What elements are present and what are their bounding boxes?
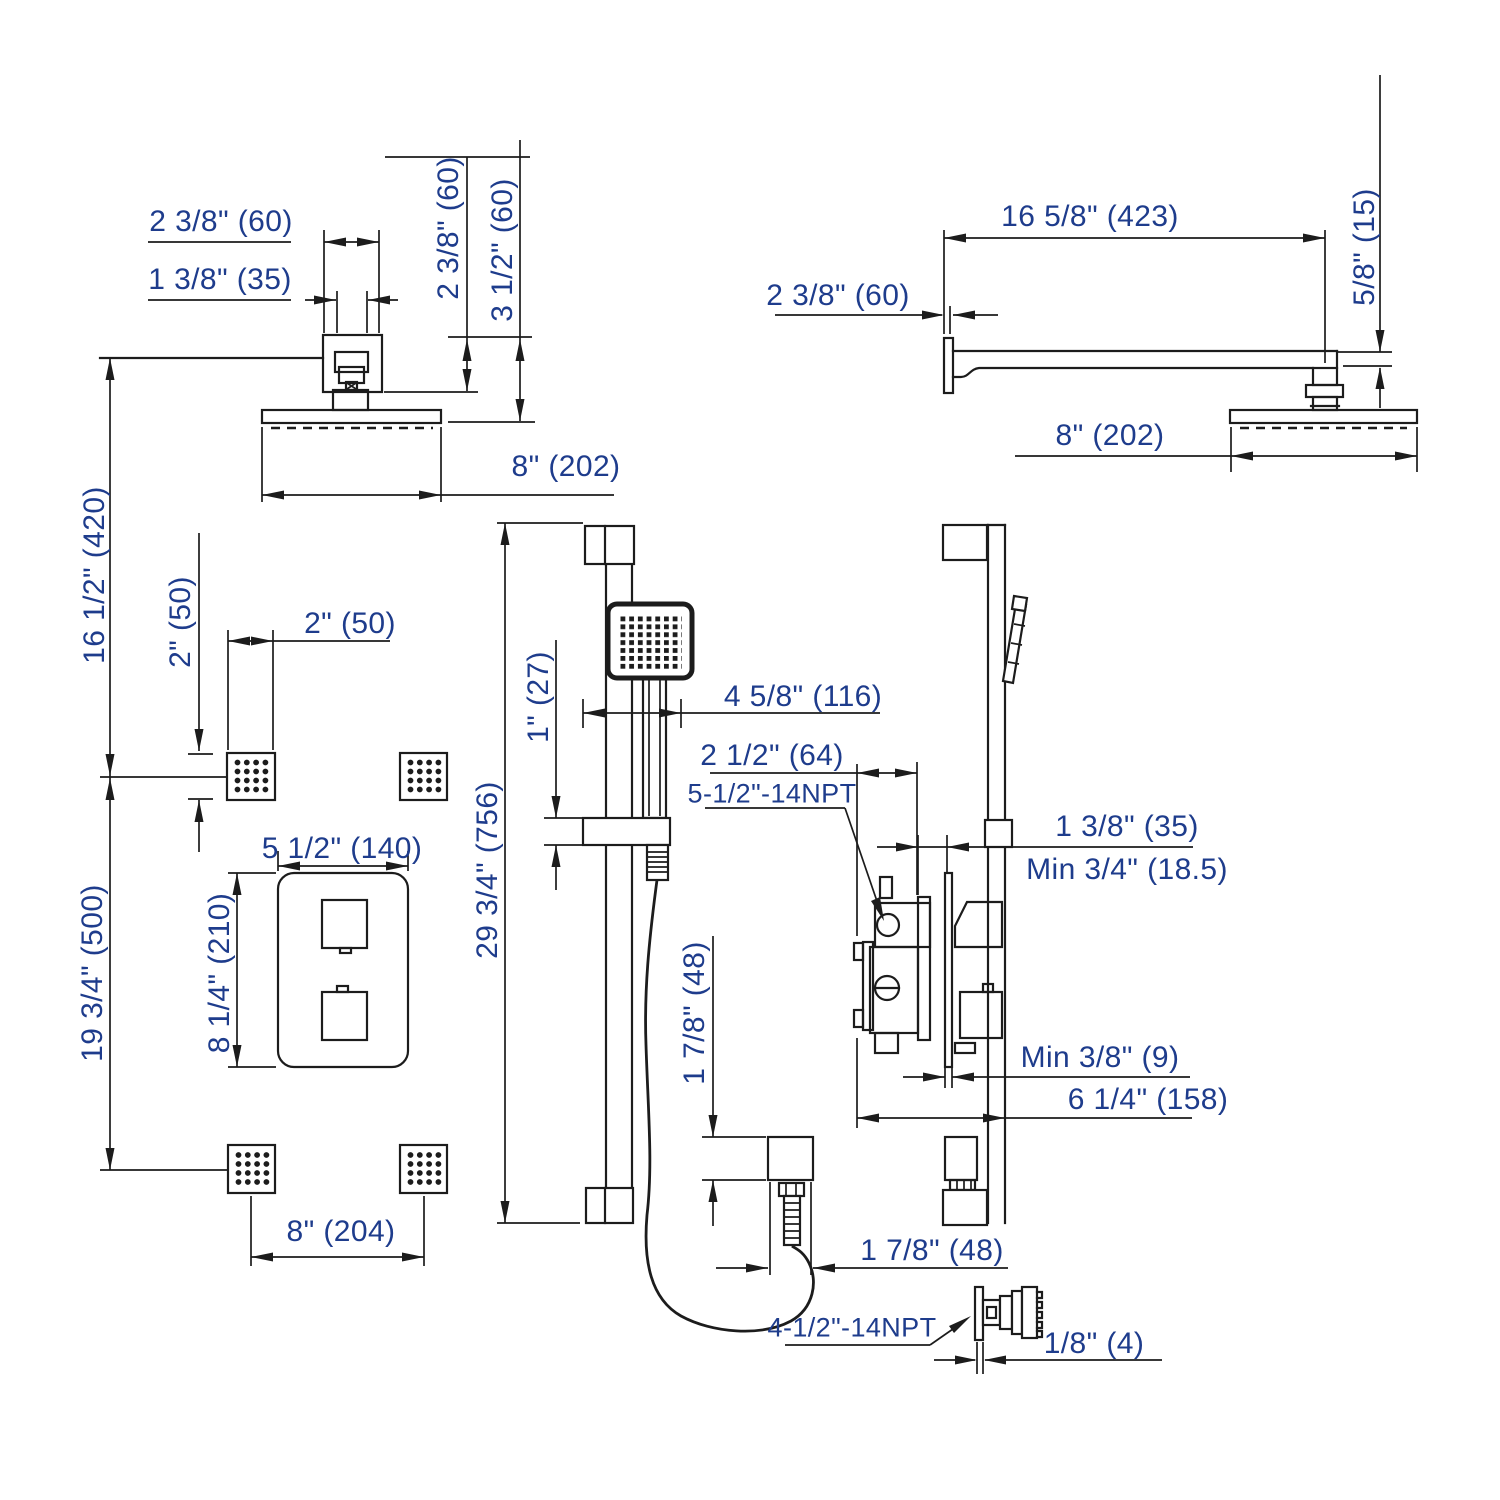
- dim-arm-thickness: 5/8" (15): [1348, 188, 1382, 306]
- dim-bar-diameter: 1" (27): [522, 651, 556, 743]
- dim-upper-to-lower-jets: 19 3/4" (500): [76, 884, 110, 1062]
- dim-slide-bar-length: 29 3/4" (756): [471, 781, 505, 959]
- view-showerhead-side: [775, 75, 1417, 472]
- dim-outlet-height: 1 7/8" (48): [678, 941, 712, 1084]
- dim-head-width-front: 8" (202): [512, 450, 621, 484]
- dim-jet-thread: 4-1/2"-14NPT: [768, 1313, 937, 1344]
- dim-escutcheon-drop: 2 3/8" (60): [432, 156, 466, 299]
- dim-arm-length: 16 5/8" (423): [1001, 200, 1179, 234]
- dim-lower-jet-spacing: 8" (204): [287, 1215, 396, 1249]
- dim-arm-neck-width: 1 3/8" (35): [148, 263, 291, 297]
- dim-valve-depth: 2 1/2" (64): [700, 739, 843, 773]
- dim-escutcheon-width: 2 3/8" (60): [149, 205, 292, 239]
- view-showerhead-front: [100, 140, 614, 502]
- dim-inlet-thread: 5-1/2"-14NPT: [688, 779, 857, 810]
- dim-jet-standoff: 1/8" (4): [1044, 1327, 1145, 1361]
- dim-outlet-width: 1 7/8" (48): [860, 1234, 1003, 1268]
- dim-head-drop: 3 1/2" (60): [486, 178, 520, 321]
- view-slidebar-front: [544, 526, 1008, 1331]
- dim-min-wall-thickness: Min 3/4" (18.5): [1026, 853, 1228, 887]
- dim-jet-width: 2" (50): [304, 607, 396, 641]
- dim-handshower-offset: 4 5/8" (116): [724, 680, 882, 714]
- dim-jet-height: 2" (50): [164, 576, 198, 668]
- dim-head-to-upper-jets: 16 1/2" (420): [78, 486, 112, 664]
- dim-valve-plate-width: 5 1/2" (140): [262, 832, 423, 866]
- dim-bar-wall-offset: 1 3/8" (35): [1055, 810, 1198, 844]
- dim-valve-to-bar: 6 1/4" (158): [1068, 1083, 1229, 1117]
- dim-min-plate-gap: Min 3/8" (9): [1021, 1041, 1180, 1075]
- dim-head-width-side: 8" (202): [1056, 419, 1165, 453]
- dim-valve-plate-height: 8 1/4" (210): [203, 893, 237, 1054]
- dim-wall-flange: 2 3/8" (60): [766, 279, 909, 313]
- spec-sheet: 2 3/8" (60) 1 3/8" (35) 2 3/8" (60) 3 1/…: [0, 0, 1500, 1500]
